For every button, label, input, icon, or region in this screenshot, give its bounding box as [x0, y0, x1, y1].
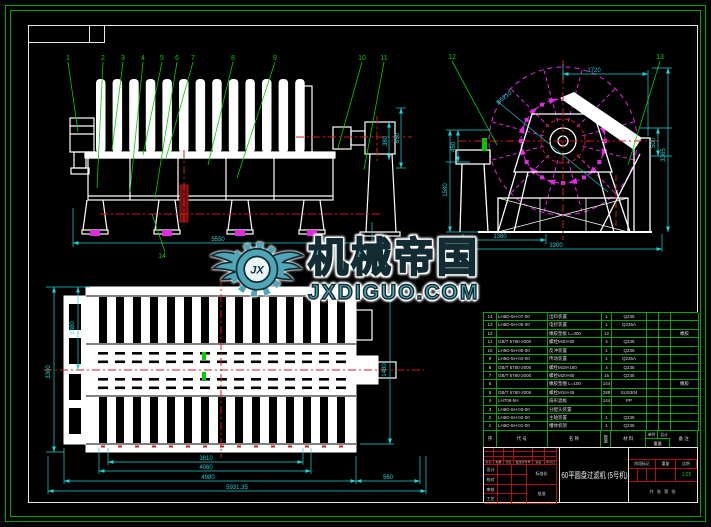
bom-cell-qty: 12 — [602, 330, 612, 338]
bom-cell-w2 — [659, 372, 671, 380]
bom-cell-w2 — [659, 414, 671, 422]
bom-cell-w2 — [659, 355, 671, 363]
bom-cell-name: 主轴装置 — [548, 414, 602, 422]
bom-cell-remark — [671, 389, 699, 397]
bom-cell-name: 螺栓M18×180 — [548, 364, 602, 372]
bom-header-code: 代 号 — [497, 431, 548, 448]
sheet-corner-box — [28, 25, 105, 43]
dim-label: 1480 — [382, 363, 388, 377]
bom-cell-material: Q235 — [612, 422, 647, 430]
bom-cell-name: 电控装置 — [548, 321, 602, 329]
dim-label: 1720 — [587, 68, 601, 74]
filter-machine-side — [456, 92, 652, 232]
dim-label: 650 — [395, 132, 401, 143]
dim-label: 560 — [383, 475, 394, 481]
stage-mark-cells — [629, 469, 656, 482]
bom-cell-qty: 288 — [602, 389, 612, 397]
item-number: 10 — [358, 55, 366, 62]
bom-cell-w1 — [647, 364, 659, 372]
bom-cell-w2 — [659, 321, 671, 329]
dim-label: 450 — [451, 141, 457, 152]
watermark-brand: 机械帝国 — [308, 237, 480, 279]
bom-cell-code: LH6D-5H-01-00 — [497, 422, 548, 430]
side-view-drawing: 12 13 1720 Φ5210 450 1580 500 3365 1380 … — [438, 42, 710, 256]
bom-cell-code: GB/T 5780-2000 — [497, 364, 548, 372]
bom-cell-material — [612, 330, 647, 338]
bom-table: 14LH6D-5H-07-00出料装置1Q23513LH6D-5H-06-00电… — [483, 312, 698, 448]
bom-cell-w1 — [647, 347, 659, 355]
bom-cell-qty: 144 — [602, 397, 612, 405]
weight-label: 重量 — [656, 460, 676, 469]
bom-cell-code: LH6D-5H-03-00 — [497, 406, 548, 414]
dim-label: 3365 — [661, 148, 667, 162]
bom-cell-name: 分配头装置 — [548, 406, 602, 414]
bom-cell-w2 — [659, 364, 671, 372]
bom-cell-material: Q235 — [612, 372, 647, 380]
bom-cell-remark — [671, 313, 699, 321]
bom-cell-name: 槽体机架 — [548, 422, 602, 430]
title-block-revision-area: 标记 处数 分区 更改文件号 签名 年月日 设计 校对 审核 工艺 标准化 批准 — [484, 448, 559, 502]
revision-grid: 标记 处数 分区 更改文件号 签名 年月日 — [484, 448, 559, 465]
bom-cell-remark — [671, 372, 699, 380]
bom-cell-code: GB/T 5780-2000 — [497, 372, 548, 380]
item-number: 7 — [191, 55, 195, 62]
bom-header-qty: 数量 — [601, 431, 611, 448]
bom-cell-w1 — [647, 338, 659, 346]
item-number: 9 — [273, 55, 277, 62]
bom-cell-material: Q235 — [612, 414, 647, 422]
bom-cell-name: 传动装置 — [548, 355, 602, 363]
dim-label: 4980 — [201, 475, 215, 481]
signature-area: 设计 校对 审核 工艺 标准化 批准 — [484, 465, 559, 504]
bom-cell-qty: 1 — [602, 422, 612, 430]
bom-cell-w1 — [647, 372, 659, 380]
dim-label: 4060 — [199, 465, 213, 471]
bom-cell-remark — [671, 338, 699, 346]
bom-cell-name: 螺栓M16×45 — [548, 389, 602, 397]
bom-cell-name: 螺栓M30×90 — [548, 338, 602, 346]
bom-cell-qty: 144 — [602, 380, 612, 388]
bom-cell-material: Q235A — [612, 355, 647, 363]
bom-cell-no: 9 — [484, 355, 497, 363]
bom-cell-code: LH6D-5H-02-00 — [497, 414, 548, 422]
bom-cell-qty: 1 — [602, 355, 612, 363]
bom-cell-w1 — [647, 406, 659, 414]
dim-label: 5931.35 — [226, 485, 248, 491]
bom-cell-no: 13 — [484, 321, 497, 329]
bom-cell-qty — [602, 406, 612, 414]
scale-value: 1:25 — [676, 469, 697, 482]
bom-cell-w2 — [659, 313, 671, 321]
bom-cell-code: LH708-5H — [497, 397, 548, 405]
bom-cell-material — [612, 380, 647, 388]
bom-cell-w1 — [647, 397, 659, 405]
bom-cell-remark — [671, 422, 699, 430]
bom-cell-remark — [671, 321, 699, 329]
dim-label: 3300 — [46, 365, 52, 379]
bom-cell-w1 — [647, 313, 659, 321]
bom-cell-name: 螺栓M20×80 — [548, 372, 602, 380]
bom-cell-w2 — [659, 406, 671, 414]
bom-header-remark: 备 注 — [670, 431, 698, 448]
bom-cell-w2 — [659, 389, 671, 397]
stage-label: 阶段标记 — [629, 460, 656, 469]
bom-cell-no: 1 — [484, 422, 497, 430]
bom-cell-no: 5 — [484, 389, 497, 397]
item-number: 14 — [158, 253, 166, 260]
bom-cell-qty: 16 — [602, 372, 612, 380]
bom-cell-code — [497, 380, 548, 388]
bom-header-weight-each: 单件 — [646, 431, 658, 439]
bom-cell-material: Q235A — [612, 321, 647, 329]
sign-label: 审核 — [484, 485, 498, 495]
bom-cell-w1 — [647, 355, 659, 363]
sign-label: 标准化 — [527, 465, 557, 485]
bom-cell-material: Q235 — [612, 313, 647, 321]
bom-cell-w2 — [659, 338, 671, 346]
sign-label: 设计 — [484, 465, 498, 475]
bom-cell-remark — [671, 347, 699, 355]
bom-cell-w2 — [659, 380, 671, 388]
bom-cell-w1 — [647, 422, 659, 430]
bom-cell-code: GB/T 5780-2000 — [497, 338, 548, 346]
bom-cell-w1 — [647, 414, 659, 422]
dim-label: 1380 — [70, 321, 76, 335]
bom-cell-code — [497, 330, 548, 338]
bom-cell-name: 橡胶垫板 L=300 — [548, 330, 602, 338]
bom-rows: 14LH6D-5H-07-00出料装置1Q23513LH6D-5H-06-00电… — [483, 312, 698, 431]
bom-cell-w2 — [659, 347, 671, 355]
dim-label: 3300 — [549, 243, 563, 249]
bom-cell-name: 扇形滤板 — [548, 397, 602, 405]
bom-cell-remark — [671, 406, 699, 414]
drawing-number-cell — [629, 448, 697, 460]
bom-cell-w2 — [659, 330, 671, 338]
disc-edges — [96, 79, 305, 153]
bom-cell-code: GB/T 5780-2005 — [497, 389, 548, 397]
bom-cell-w2 — [659, 422, 671, 430]
bom-cell-material — [612, 406, 647, 414]
bom-cell-name: 反冲装置 — [548, 347, 602, 355]
sign-label: 工艺 — [484, 494, 498, 504]
sign-label: 批准 — [527, 485, 557, 505]
sheet-count: 共 张 第 张 — [629, 482, 697, 502]
item-number: 12 — [448, 54, 456, 61]
item-number: 11 — [380, 55, 387, 62]
bom-cell-w1 — [647, 389, 659, 397]
bom-cell-remark — [671, 414, 699, 422]
bom-cell-no: 3 — [484, 406, 497, 414]
weight-value-cell — [656, 469, 676, 482]
scale-label: 比例 — [676, 460, 697, 469]
title-block: 标记 处数 分区 更改文件号 签名 年月日 设计 校对 审核 工艺 标准化 批准 — [483, 447, 698, 503]
bom-cell-remark — [671, 355, 699, 363]
dim-label: 380 — [383, 135, 389, 146]
bom-cell-material: SUS304 — [612, 389, 647, 397]
bom-header-weight: 单件 总计 重量 — [646, 431, 670, 448]
bom-cell-code: LH6D-5H-05-00 — [497, 347, 548, 355]
bom-cell-w1 — [647, 321, 659, 329]
bom-cell-no: 4 — [484, 397, 497, 405]
bom-cell-material: PP — [612, 397, 647, 405]
watermark: JX 机械帝国 JXDIGUO.COM — [210, 226, 510, 316]
item-numbers: 12 13 — [448, 54, 664, 61]
bom-cell-no: 6 — [484, 380, 497, 388]
item-number: 13 — [656, 54, 664, 61]
bom-cell-remark — [671, 397, 699, 405]
bom-cell-material: Q235 — [612, 338, 647, 346]
bom-cell-qty: 4 — [602, 338, 612, 346]
item-number: 8 — [231, 55, 235, 62]
bom-cell-no: 11 — [484, 338, 497, 346]
bom-cell-w1 — [647, 330, 659, 338]
bom-cell-no: 12 — [484, 330, 497, 338]
bom-header-name: 名 称 — [548, 431, 602, 448]
dim-label: 3810 — [199, 456, 213, 462]
bom-cell-qty: 1 — [602, 321, 612, 329]
cad-drawing-sheet: 1 2 3 4 5 6 7 8 9 10 11 14 650 380 5550 — [0, 0, 711, 527]
bom-cell-qty: 4 — [602, 364, 612, 372]
watermark-logo: JX — [210, 228, 304, 314]
bom-cell-material: Q235 — [612, 347, 647, 355]
bom-cell-remark: 橡胶 — [671, 330, 699, 338]
bom-cell-name: 橡胶垫圈 L=100 — [548, 380, 602, 388]
dim-label: 1580 — [443, 183, 449, 197]
bom-cell-name: 出料装置 — [548, 313, 602, 321]
sign-label: 校对 — [484, 475, 498, 485]
item-number: 2 — [101, 55, 105, 62]
monogram-text: JX — [250, 265, 264, 277]
watermark-site: JXDIGUO.COM — [308, 281, 480, 305]
bom-cell-remark: 橡胶 — [671, 380, 699, 388]
item-number: 1 — [66, 55, 70, 62]
bom-header: 序 代 号 名 称 数量 材 料 单件 总计 重量 备 注 — [483, 431, 698, 448]
bom-cell-w2 — [659, 397, 671, 405]
bom-cell-qty: 1 — [602, 347, 612, 355]
item-number: 3 — [121, 55, 125, 62]
bom-header-weight-total: 总计 — [658, 431, 670, 439]
bom-cell-no: 10 — [484, 347, 497, 355]
bom-cell-remark — [671, 364, 699, 372]
bom-cell-w1 — [647, 380, 659, 388]
bom-cell-material: Q235 — [612, 364, 647, 372]
bom-header-seq: 序 — [484, 431, 497, 448]
bom-cell-qty: 1 — [602, 414, 612, 422]
item-number: 6 — [175, 55, 179, 62]
title-block-info-area: 阶段标记 重量 比例 1:25 共 张 第 张 — [629, 448, 697, 502]
drawing-title: 60平圆盘过滤机 (5号机) — [561, 470, 627, 481]
bom-cell-no: 7 — [484, 372, 497, 380]
bom-cell-qty: 1 — [602, 313, 612, 321]
dim-label: Φ5210 — [495, 90, 513, 106]
item-number: 4 — [141, 55, 145, 62]
title-block-name-area: 60平圆盘过滤机 (5号机) — [559, 448, 629, 502]
dim-label: 500 — [651, 137, 657, 148]
item-number: 5 — [160, 55, 164, 62]
bom-cell-code: LH6D-5H-06-00 — [497, 321, 548, 329]
valve-mark — [482, 138, 487, 151]
bom-cell-code: LH6D-5H-04-00 — [497, 355, 548, 363]
bom-cell-no: 2 — [484, 414, 497, 422]
bom-cell-no: 8 — [484, 364, 497, 372]
bom-header-material: 材 料 — [611, 431, 646, 448]
